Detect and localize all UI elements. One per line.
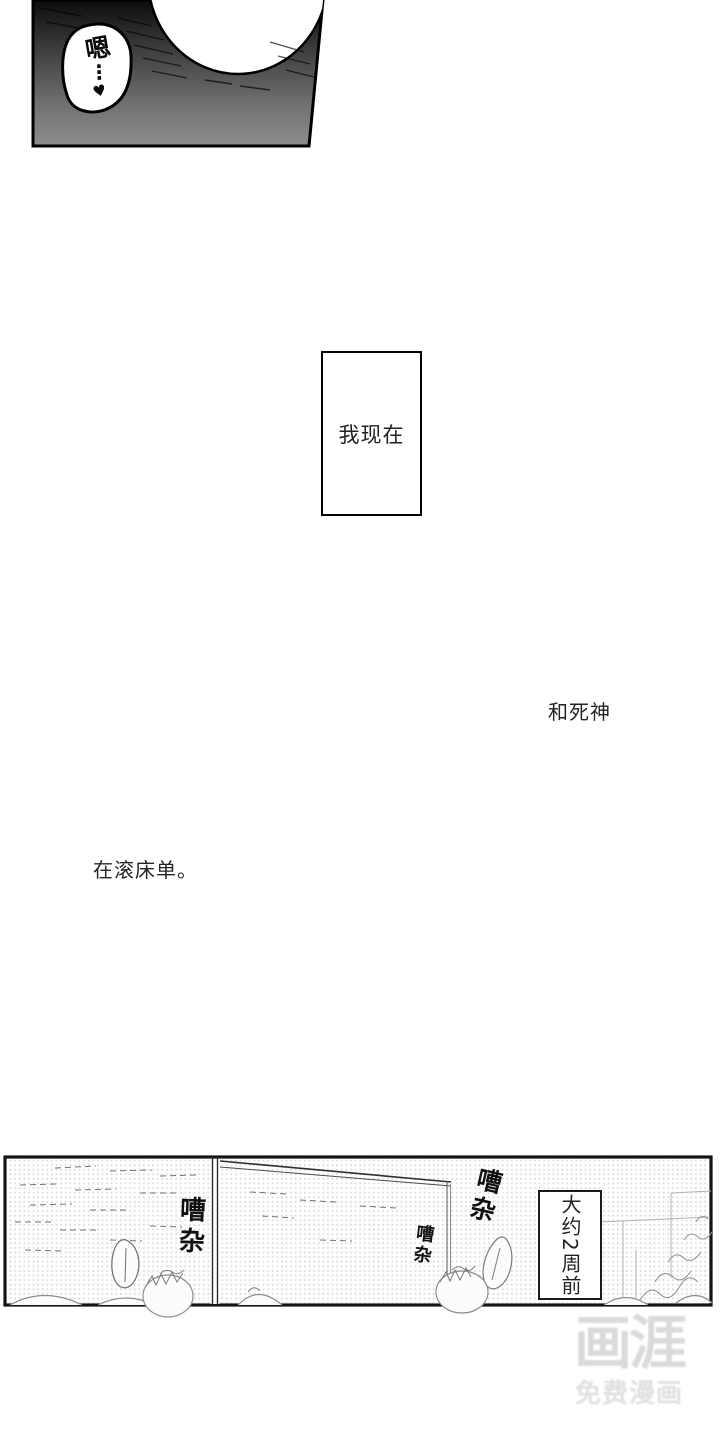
ellipsis-dots: ⋮ xyxy=(89,63,110,82)
watermark-tagline: 免费漫画 xyxy=(556,1373,702,1410)
watermark-logo: 画涯 xyxy=(556,1312,702,1375)
time-caption-text: 大约2周前 xyxy=(560,1194,580,1297)
halftone-texture xyxy=(7,1159,709,1303)
manga-page: 嗯 ⋮ ♥ 我现在 和死神 在滚床单。 嘈杂 嘈杂 嘈杂 大约2周前 画涯 免费… xyxy=(0,0,720,1440)
sfx-noise-1: 嘈杂 xyxy=(171,1195,210,1258)
narration-text-left: 在滚床单。 xyxy=(93,854,198,883)
narration-box-text: 我现在 xyxy=(339,419,405,449)
watermark: 画涯 免费漫画 xyxy=(556,1312,702,1410)
narration-text-right: 和死神 xyxy=(548,696,611,725)
bottom-panel xyxy=(5,1157,712,1317)
speech-bubble: 嗯 ⋮ ♥ xyxy=(60,23,137,114)
manga-artwork xyxy=(0,0,720,1440)
time-caption-box: 大约2周前 xyxy=(538,1190,602,1300)
sfx-noise-2: 嘈杂 xyxy=(407,1223,438,1268)
narration-box: 我现在 xyxy=(321,351,422,516)
bubble-text: 嗯 xyxy=(84,34,113,63)
